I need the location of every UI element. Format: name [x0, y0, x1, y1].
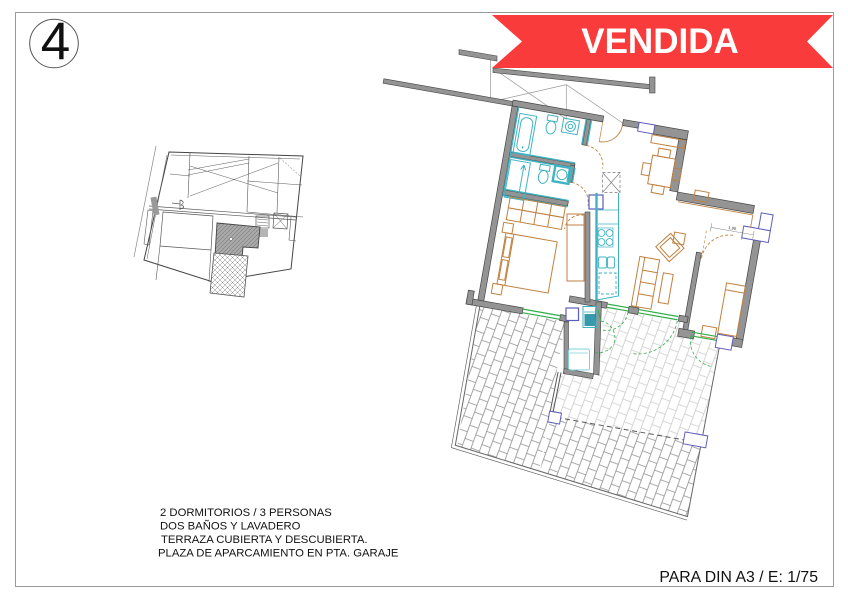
svg-text:PLAZA DE APARCAMIENTO EN PTA.: PLAZA DE APARCAMIENTO EN PTA. GARAJE [158, 548, 399, 560]
svg-text:4: 4 [41, 13, 70, 72]
svg-text:DOS BAÑOS Y LAVADERO: DOS BAÑOS Y LAVADERO [160, 520, 301, 533]
svg-text:VENDIDA: VENDIDA [581, 22, 739, 61]
svg-text:TERRAZA CUBIERTA Y DESCUBIERT: TERRAZA CUBIERTA Y DESCUBIERTA. [161, 534, 368, 546]
svg-text:PARA DIN A3 / E: 1/75: PARA DIN A3 / E: 1/75 [659, 569, 818, 586]
svg-text:2 DORMITORIOS / 3 PERSONAS: 2 DORMITORIOS / 3 PERSONAS [160, 507, 332, 519]
